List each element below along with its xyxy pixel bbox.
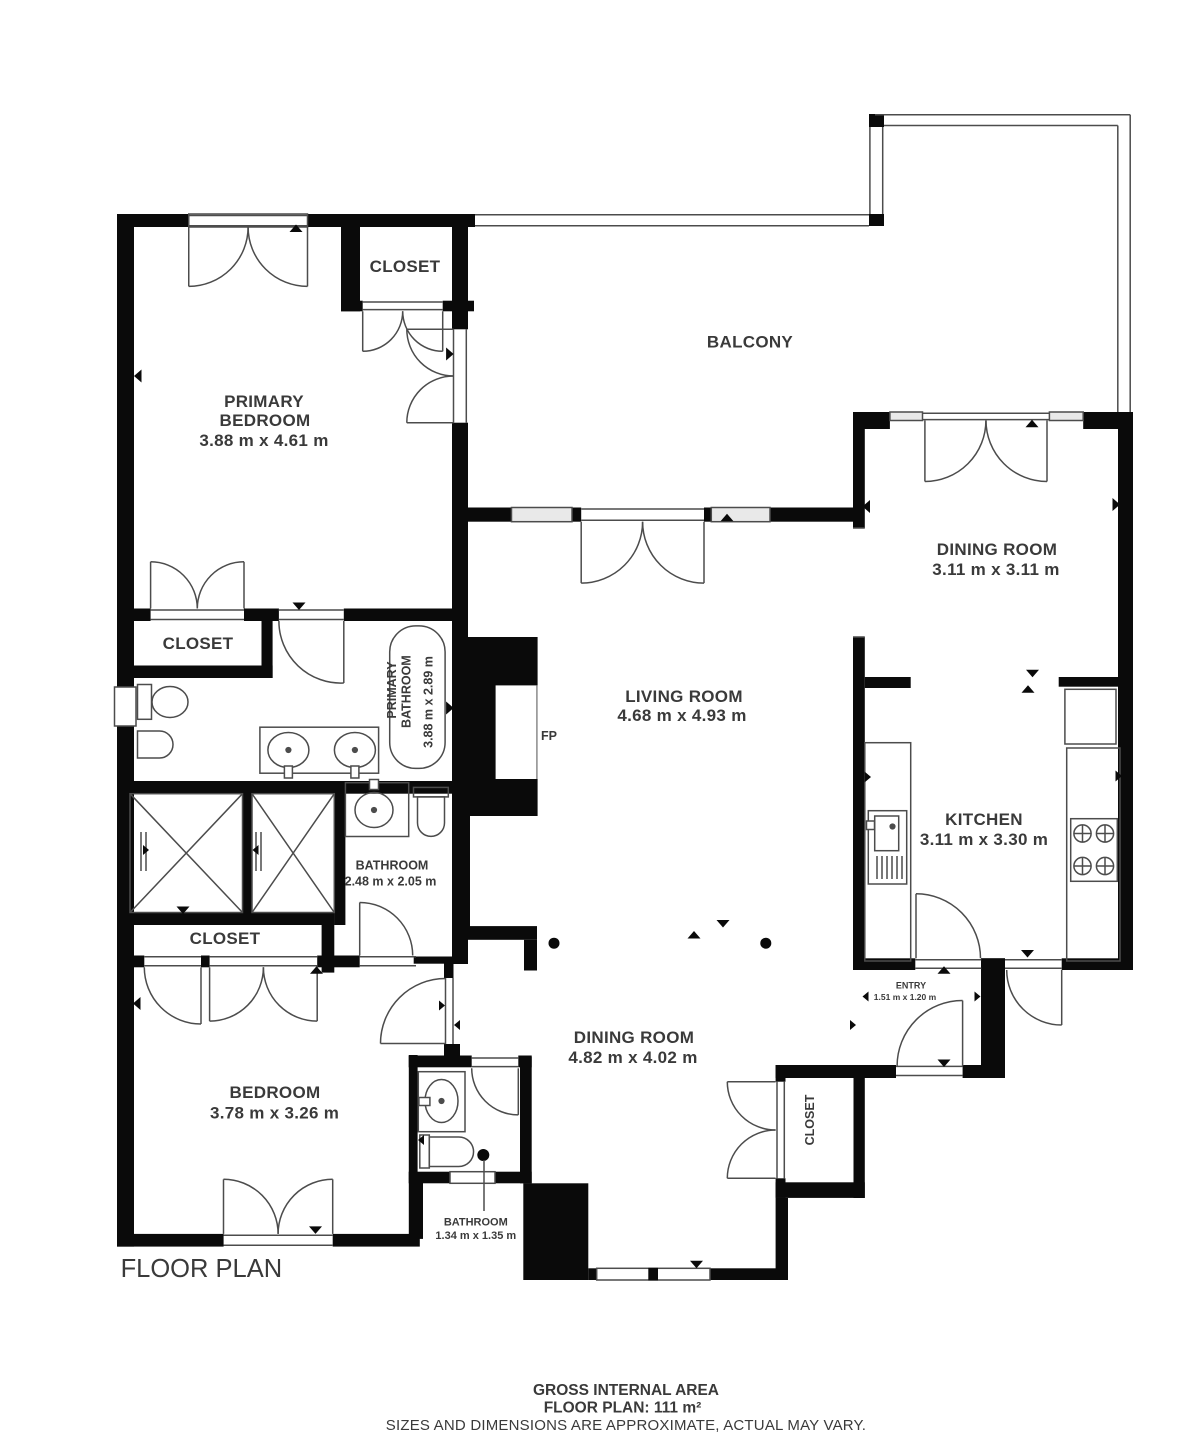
svg-text:FLOOR PLAN: FLOOR PLAN: [121, 1255, 283, 1283]
svg-text:1.51 m x 1.20 m: 1.51 m x 1.20 m: [874, 992, 937, 1002]
svg-text:ENTRY: ENTRY: [896, 981, 926, 991]
svg-text:2.48 m x 2.05 m: 2.48 m x 2.05 m: [345, 875, 437, 889]
svg-text:BATHROOM: BATHROOM: [356, 859, 429, 873]
svg-text:PRIMARY: PRIMARY: [224, 392, 304, 411]
svg-text:3.11 m x 3.11 m: 3.11 m x 3.11 m: [932, 560, 1059, 579]
svg-text:4.68 m x 4.93 m: 4.68 m x 4.93 m: [617, 706, 746, 725]
svg-text:PRIMARY: PRIMARY: [385, 661, 399, 719]
svg-text:LIVING ROOM: LIVING ROOM: [625, 687, 743, 706]
svg-text:CLOSET: CLOSET: [370, 257, 441, 276]
svg-text:FP: FP: [541, 729, 557, 743]
svg-text:CLOSET: CLOSET: [190, 929, 261, 948]
svg-text:CLOSET: CLOSET: [163, 634, 234, 653]
svg-text:DINING ROOM: DINING ROOM: [937, 540, 1057, 559]
svg-text:CLOSET: CLOSET: [803, 1094, 817, 1145]
svg-text:3.78 m x 3.26 m: 3.78 m x 3.26 m: [210, 1104, 339, 1123]
svg-text:FLOOR PLAN: 111 m²: FLOOR PLAN: 111 m²: [544, 1400, 702, 1417]
svg-text:4.82 m x 4.02 m: 4.82 m x 4.02 m: [568, 1048, 697, 1067]
svg-text:BATHROOM: BATHROOM: [399, 655, 413, 728]
svg-text:3.88 m x 2.89 m: 3.88 m x 2.89 m: [422, 656, 436, 748]
svg-text:SIZES AND DIMENSIONS ARE APPRO: SIZES AND DIMENSIONS ARE APPROXIMATE, AC…: [386, 1417, 866, 1434]
svg-text:3.11 m x 3.30 m: 3.11 m x 3.30 m: [920, 830, 1048, 849]
svg-text:3.88 m x 4.61 m: 3.88 m x 4.61 m: [199, 431, 328, 450]
svg-text:BALCONY: BALCONY: [707, 333, 794, 352]
svg-text:KITCHEN: KITCHEN: [945, 810, 1023, 829]
svg-text:BEDROOM: BEDROOM: [220, 411, 311, 430]
svg-text:BATHROOM: BATHROOM: [444, 1217, 508, 1229]
svg-text:GROSS INTERNAL AREA: GROSS INTERNAL AREA: [533, 1382, 719, 1399]
svg-text:DINING ROOM: DINING ROOM: [574, 1028, 694, 1047]
svg-text:1.34 m x 1.35 m: 1.34 m x 1.35 m: [435, 1230, 516, 1242]
svg-text:BEDROOM: BEDROOM: [230, 1083, 321, 1102]
